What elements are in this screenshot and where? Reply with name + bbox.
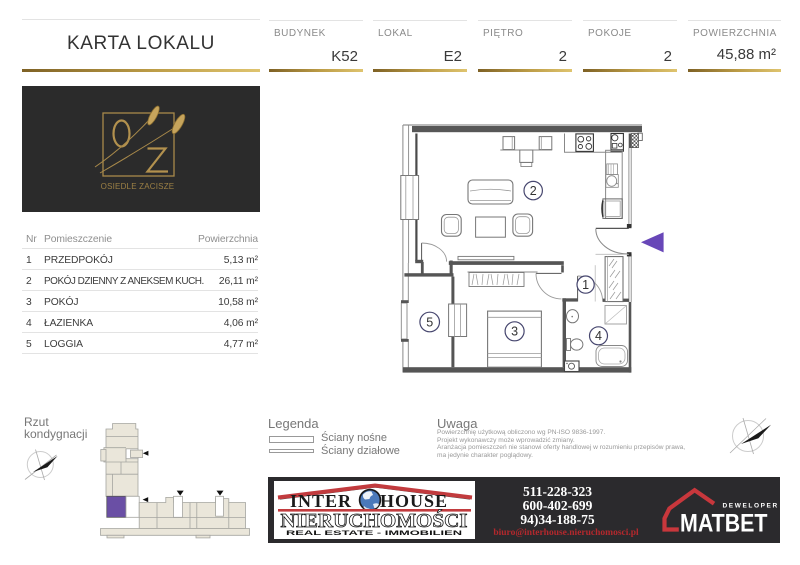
svg-text:NIERUCHOMOŚCI: NIERUCHOMOŚCI — [280, 508, 467, 532]
svg-text:MATBET: MATBET — [680, 510, 768, 538]
svg-text:REAL ESTATE - IMMOBILIEN: REAL ESTATE - IMMOBILIEN — [286, 530, 462, 537]
svg-text:2: 2 — [530, 184, 537, 198]
svg-text:4: 4 — [595, 329, 602, 343]
svg-text:1: 1 — [582, 278, 589, 292]
svg-text:3: 3 — [511, 325, 518, 339]
svg-text:INTER: INTER — [290, 491, 352, 511]
svg-text:HOUSE: HOUSE — [380, 491, 448, 511]
svg-text:DEWELOPER: DEWELOPER — [723, 503, 779, 510]
svg-text:5: 5 — [426, 315, 433, 329]
svg-text:OSIEDLE ZACISZE: OSIEDLE ZACISZE — [101, 182, 175, 191]
